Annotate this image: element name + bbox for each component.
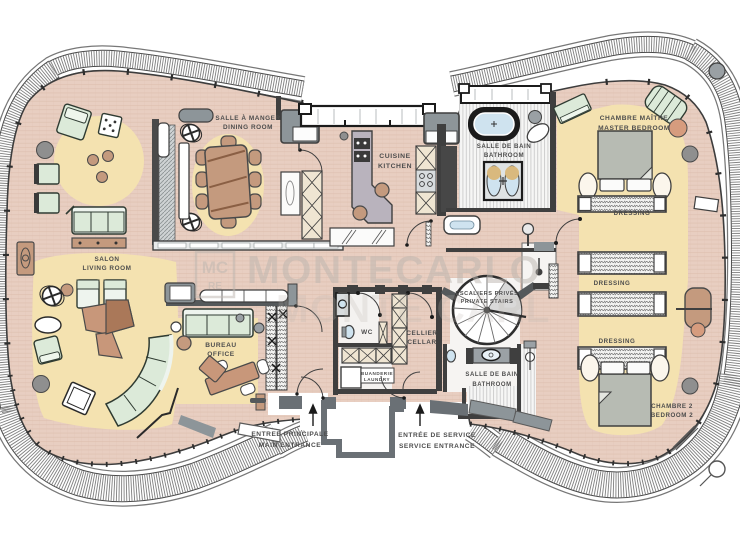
- svg-text:CELLIER: CELLIER: [406, 330, 437, 337]
- svg-text:KITCHEN: KITCHEN: [378, 163, 412, 170]
- svg-text:LIVING ROOM: LIVING ROOM: [82, 265, 131, 272]
- svg-text:MASTER BEDROOM: MASTER BEDROOM: [598, 125, 670, 132]
- svg-text:RE: RE: [208, 281, 222, 292]
- svg-text:CELLAR: CELLAR: [407, 339, 436, 346]
- svg-text:BATHROOM: BATHROOM: [484, 152, 524, 159]
- svg-text:SALLE DE BAIN: SALLE DE BAIN: [477, 143, 532, 150]
- svg-text:CHAMBRE MAÎTRE: CHAMBRE MAÎTRE: [600, 113, 669, 122]
- svg-text:CHAMBRE 2: CHAMBRE 2: [651, 403, 693, 410]
- svg-text:DRESSING: DRESSING: [614, 210, 651, 217]
- svg-text:MONTE CARL: MONTE CARL: [276, 288, 551, 331]
- svg-text:MONTECARLO: MONTECARLO: [247, 249, 541, 292]
- svg-text:BEDROOM 2: BEDROOM 2: [651, 412, 693, 419]
- svg-text:LAUNDRY: LAUNDRY: [364, 377, 390, 382]
- svg-text:OFFICE: OFFICE: [207, 351, 235, 358]
- svg-text:SALLE DE BAIN: SALLE DE BAIN: [465, 372, 518, 378]
- svg-text:DRESSING: DRESSING: [594, 280, 631, 287]
- svg-text:DRESSING: DRESSING: [599, 338, 636, 345]
- svg-text:BUREAU: BUREAU: [205, 342, 237, 349]
- svg-text:BUANDERIE: BUANDERIE: [361, 371, 393, 376]
- svg-text:SALLE À MANGER: SALLE À MANGER: [215, 113, 280, 122]
- svg-text:CUISINE: CUISINE: [379, 153, 410, 160]
- svg-text:ENTRÉE DE SERVICE: ENTRÉE DE SERVICE: [398, 430, 476, 439]
- svg-text:SALON: SALON: [94, 256, 119, 263]
- svg-text:BATHROOM: BATHROOM: [472, 382, 511, 388]
- svg-text:MC: MC: [202, 258, 228, 277]
- svg-text:DINING ROOM: DINING ROOM: [223, 124, 273, 131]
- svg-text:SERVICE ENTRANCE: SERVICE ENTRANCE: [399, 443, 475, 450]
- svg-text:ENTREE PRINCIPALE: ENTREE PRINCIPALE: [251, 431, 328, 438]
- svg-text:MAIN ENTRANCE: MAIN ENTRANCE: [259, 442, 322, 449]
